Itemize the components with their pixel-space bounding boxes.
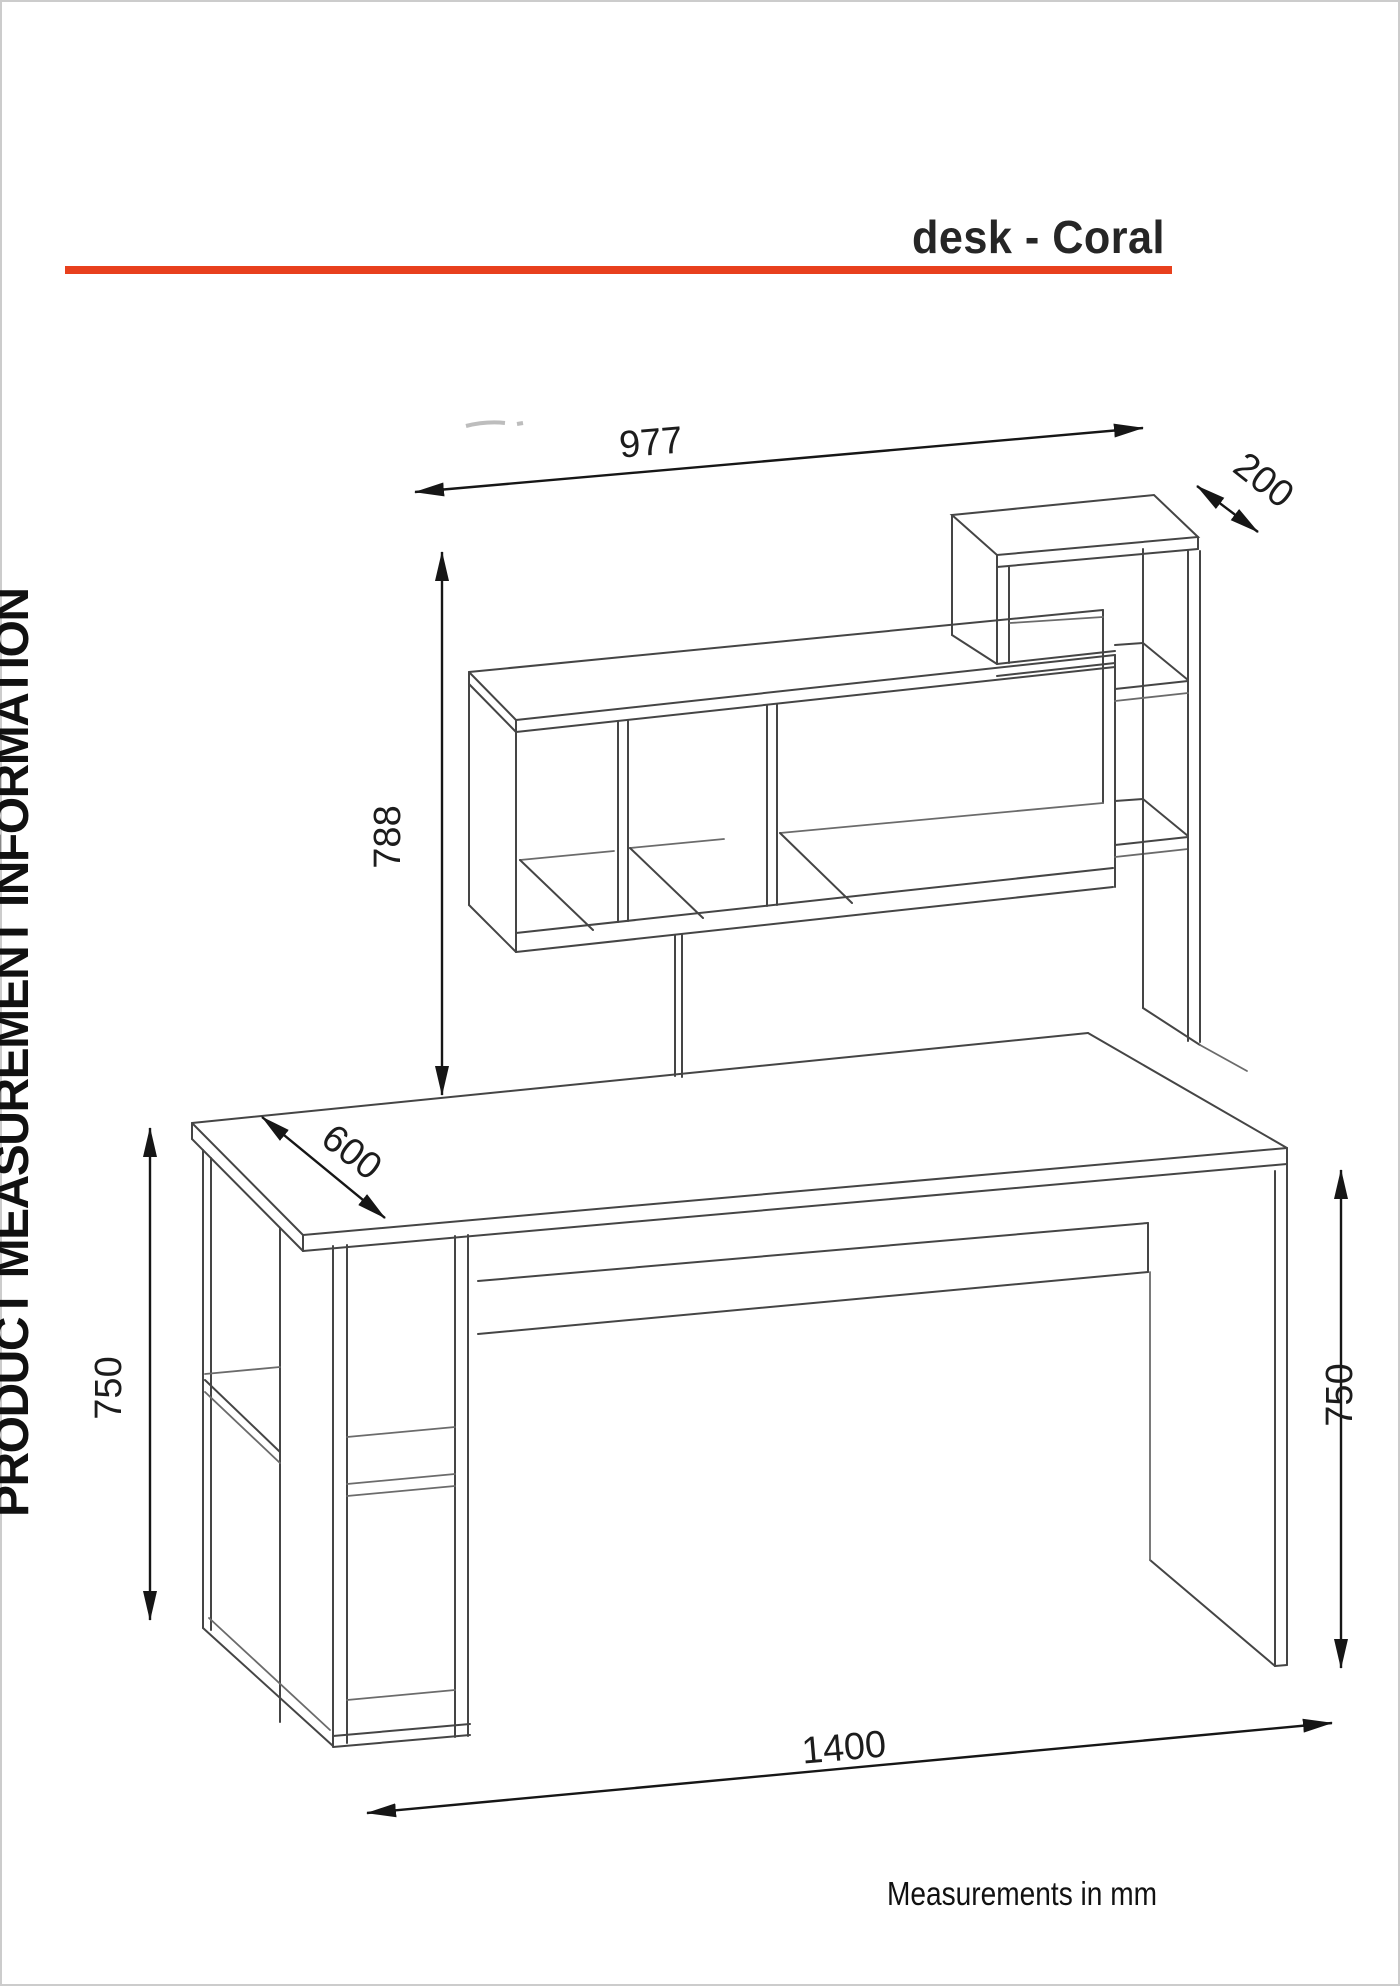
dimension-label-hutch-height: 788 xyxy=(367,805,409,868)
hutch-upper-right-shelf xyxy=(1115,643,1188,701)
dimension-desktop-depth: 600 xyxy=(262,1116,389,1218)
measurement-sheet: desk - Coral PRODUCT MEASUREMENT INFORMA… xyxy=(0,0,1400,1986)
scan-smudge xyxy=(466,422,523,426)
dimension-desk-width: 1400 xyxy=(367,1723,1332,1813)
dimension-label-hutch-width: 977 xyxy=(618,419,685,466)
dimension-label-height-left: 750 xyxy=(88,1356,130,1419)
desk-drawing xyxy=(192,495,1287,1747)
dimension-label-height-right: 750 xyxy=(1319,1363,1361,1426)
hutch-top-box xyxy=(952,495,1198,676)
diagram-canvas: desk - Coral PRODUCT MEASUREMENT INFORMA… xyxy=(0,0,1400,1986)
dimension-label-desk-width: 1400 xyxy=(800,1723,888,1772)
dimension-height-right: 750 xyxy=(1319,1170,1361,1668)
right-side-panel xyxy=(1150,1164,1287,1666)
dimension-label-hutch-depth: 200 xyxy=(1225,444,1301,516)
header: desk - Coral xyxy=(65,211,1172,274)
dimension-height-left: 750 xyxy=(88,1128,150,1620)
hutch-center-support xyxy=(675,934,682,1077)
dimension-hutch-height: 788 xyxy=(367,552,442,1095)
footer-note: Measurements in mm xyxy=(887,1875,1157,1912)
sidebar: PRODUCT MEASUREMENT INFORMATION xyxy=(0,587,39,1517)
sidebar-label: PRODUCT MEASUREMENT INFORMATION xyxy=(0,587,39,1517)
page-border xyxy=(1,1,1399,1985)
page-title: desk - Coral xyxy=(912,211,1165,263)
hutch-lower-right-shelf xyxy=(1115,799,1188,857)
dimension-label-desktop-depth: 600 xyxy=(313,1116,389,1188)
hutch-tall-panel xyxy=(1143,549,1247,1071)
dimension-hutch-width: 977 xyxy=(415,419,1143,492)
dimension-hutch-depth: 200 xyxy=(1197,444,1301,532)
accent-rule xyxy=(65,266,1172,274)
dimension-annotations: 977 200 788 600 750 750 1400 xyxy=(88,419,1361,1813)
apron-panel xyxy=(478,1223,1148,1334)
footer: Measurements in mm xyxy=(887,1875,1157,1912)
